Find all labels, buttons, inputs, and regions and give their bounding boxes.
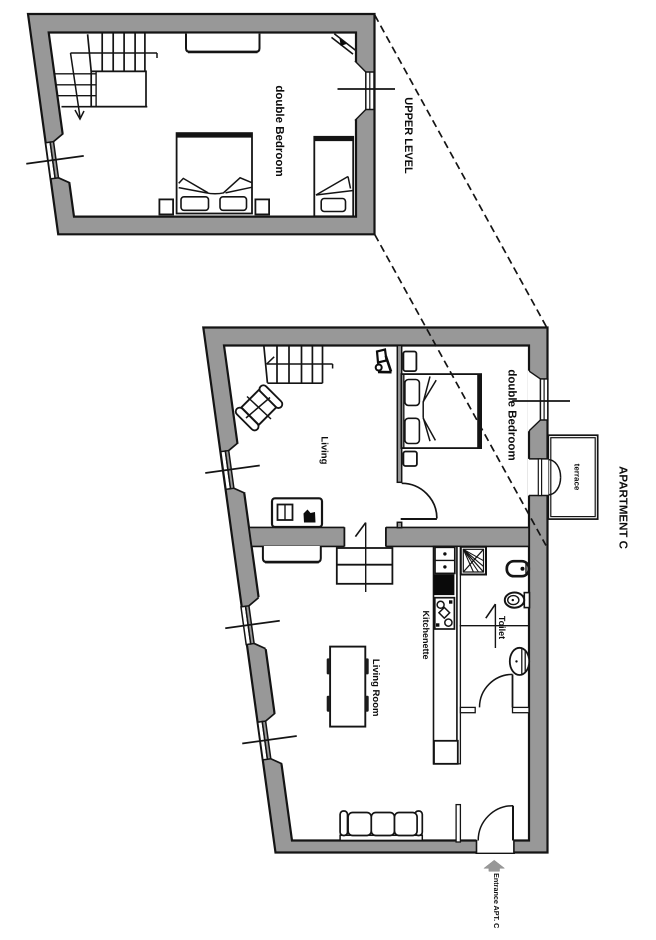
svg-text:double Bedroom: double Bedroom	[505, 369, 517, 460]
svg-text:Kitchenette: Kitchenette	[421, 610, 431, 659]
svg-text:terrace: terrace	[572, 464, 581, 491]
svg-text:APARTMENT C: APARTMENT C	[616, 466, 628, 549]
svg-text:UPPER LEVEL: UPPER LEVEL	[402, 97, 414, 174]
svg-text:Toilet: Toilet	[497, 616, 507, 639]
svg-text:Living: Living	[318, 436, 329, 464]
svg-text:Entrance APT. C: Entrance APT. C	[492, 873, 501, 928]
svg-text:Living Room: Living Room	[370, 659, 381, 717]
svg-text:double Bedroom: double Bedroom	[273, 85, 285, 176]
